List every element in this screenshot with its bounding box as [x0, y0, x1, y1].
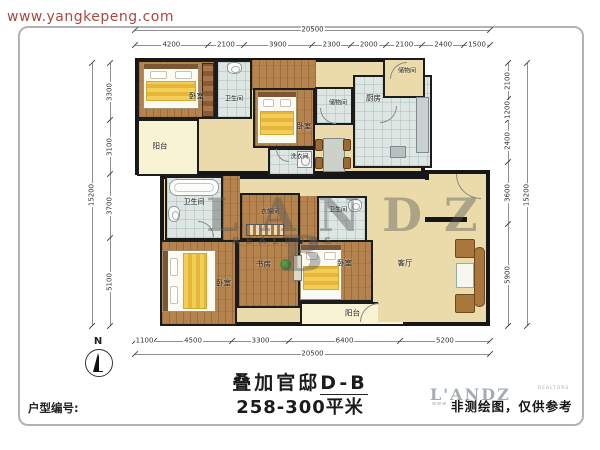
room-label-bath-3: 卫生间 — [329, 205, 347, 214]
dimension-tick — [107, 323, 113, 329]
agency-logo-url: www — [432, 401, 447, 407]
closet-shelf — [246, 224, 284, 236]
room-label-cloak: 衣帽间 — [261, 206, 279, 215]
dimension-label: 1200 — [505, 100, 512, 120]
dimension-label: 3300 — [251, 338, 271, 345]
armchair — [455, 294, 475, 313]
dimension-label: 4200 — [161, 42, 181, 49]
pillow — [280, 99, 291, 107]
room-study — [237, 240, 300, 308]
room-hall-top — [252, 60, 316, 90]
room-label-kitchen: 厨房 — [366, 92, 381, 103]
dimension-label: 3300 — [107, 82, 114, 102]
dimension-tick — [524, 323, 530, 329]
headboard — [144, 64, 198, 69]
dining-table — [315, 133, 351, 175]
plan-title-suffix: D-B — [320, 372, 368, 395]
dimension-tick — [487, 351, 493, 357]
pillow — [150, 71, 166, 79]
dimension-label: 2400 — [505, 131, 512, 151]
chair — [343, 139, 351, 150]
dimension-label: 2400 — [433, 42, 453, 49]
dimension-label: 1100 — [135, 338, 155, 345]
armchair — [455, 239, 475, 258]
room-label-bedroom-3: 卧室 — [216, 278, 231, 289]
dimension-label: 4500 — [183, 338, 203, 345]
dimension-label: 15200 — [524, 182, 531, 206]
headboard — [258, 92, 296, 97]
bed — [300, 244, 342, 300]
dimension-label: 2100 — [216, 42, 236, 49]
toilet — [348, 199, 362, 212]
room-label-bath-1: 卫生间 — [225, 93, 243, 102]
bed — [257, 91, 297, 144]
agency-logo-subtext: REALTORS — [538, 386, 569, 391]
dimension-tick — [487, 338, 493, 344]
unit-number-label: 户型编号: — [28, 400, 79, 416]
room-label-laundry: 洗衣间 — [290, 152, 308, 161]
bathtub — [169, 179, 219, 196]
dimension-label: 5900 — [505, 265, 512, 285]
kitchen-appliance — [390, 146, 406, 158]
dimension-label: 5100 — [107, 272, 114, 292]
pillow — [170, 286, 178, 304]
cabinet — [293, 255, 302, 281]
pillow — [170, 258, 178, 276]
room-label-balcony-left: 阳台 — [153, 140, 168, 151]
room-label-bedroom-4: 卧室 — [337, 258, 352, 269]
room-label-storage-2: 储物间 — [398, 66, 416, 75]
coffee-table — [456, 263, 474, 288]
dimension-tick — [487, 27, 493, 33]
room-balcony-left — [137, 119, 199, 176]
toilet — [227, 62, 242, 74]
dimension-label: 3700 — [107, 196, 114, 216]
bed — [143, 63, 199, 109]
disclaimer-text: 非测绘图，仅供参考 — [451, 396, 573, 415]
kitchen-counter — [416, 97, 429, 153]
dimension-label: 3600 — [505, 183, 512, 203]
blanket — [260, 111, 294, 134]
chair — [343, 157, 351, 168]
dimension-tick — [89, 323, 95, 329]
room-label-bedroom-1: 卧室 — [189, 90, 204, 101]
floorplan-page: www.yangkepeng.com 卧室卫生间阳台卧室洗衣间储物间厨房储物间卫… — [0, 0, 600, 450]
plan-title-prefix: 叠加官邸 — [232, 372, 320, 394]
blanket — [303, 266, 339, 291]
dimension-tick — [487, 42, 493, 48]
toilet — [168, 206, 180, 222]
room-label-storage-1: 储物间 — [329, 98, 347, 107]
dimension-label: 15200 — [89, 182, 96, 206]
pillow — [324, 252, 336, 260]
dimension-label: 2100 — [505, 71, 512, 91]
headboard — [163, 251, 168, 311]
table-top — [323, 138, 345, 172]
headboard — [301, 245, 341, 250]
dimension-label: 3100 — [107, 137, 114, 157]
dimension-label: 20500 — [300, 27, 324, 34]
plant — [280, 259, 291, 270]
wall-segment — [425, 217, 467, 222]
room-label-bedroom-2: 卧室 — [297, 121, 312, 132]
room-label-living: 客厅 — [398, 258, 413, 269]
dimension-label: 2300 — [322, 42, 342, 49]
pillow — [263, 99, 274, 107]
room-hall-mid — [223, 176, 240, 240]
pillow — [175, 71, 191, 79]
dimension-label: 3900 — [268, 42, 288, 49]
blanket — [183, 253, 207, 309]
dimension-label: 1500 — [467, 42, 487, 49]
dimension-label: 2100 — [394, 42, 414, 49]
chair — [315, 139, 323, 150]
room-label-bath-2: 卫生间 — [184, 197, 205, 207]
dimension-tick — [505, 323, 511, 329]
chair — [315, 157, 323, 168]
dimension-label: 5200 — [435, 338, 455, 345]
bed — [162, 250, 216, 312]
sofa — [474, 247, 485, 307]
dimension-label: 20500 — [300, 351, 324, 358]
north-label: N — [94, 336, 102, 347]
dimension-label: 6400 — [335, 338, 355, 345]
room-label-balcony-bottom: 阳台 — [345, 308, 360, 319]
room-label-study: 书房 — [256, 259, 271, 270]
pillow — [306, 252, 318, 260]
dimension-label: 2000 — [359, 42, 379, 49]
